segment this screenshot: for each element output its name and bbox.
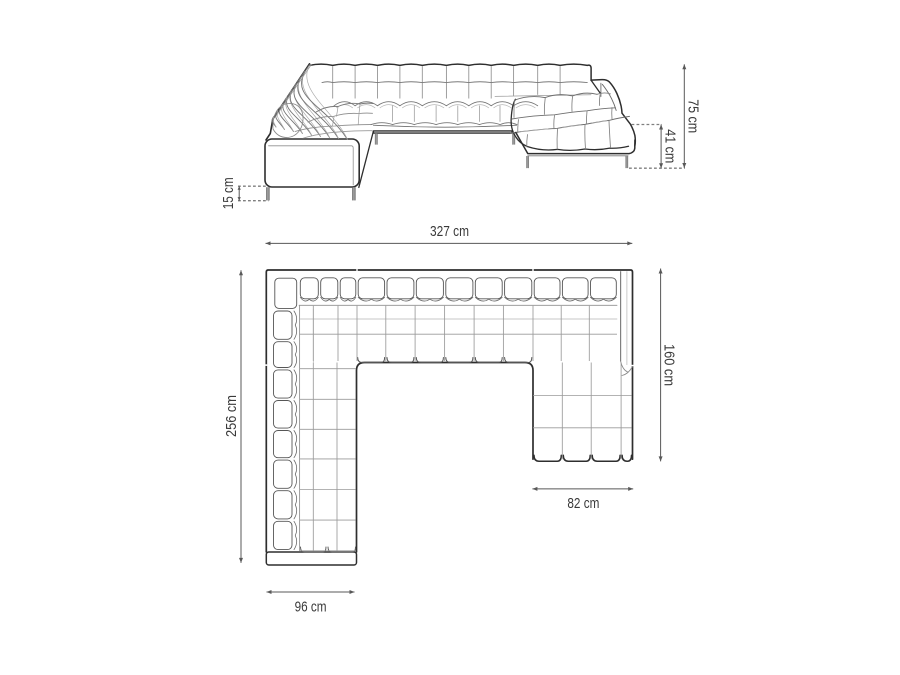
svg-text:96 cm: 96 cm <box>295 599 327 616</box>
svg-text:256 cm: 256 cm <box>223 395 240 437</box>
svg-text:15 cm: 15 cm <box>220 177 237 209</box>
svg-text:75 cm: 75 cm <box>685 99 702 133</box>
svg-text:41 cm: 41 cm <box>661 129 678 163</box>
svg-text:160 cm: 160 cm <box>661 344 678 386</box>
svg-text:327 cm: 327 cm <box>430 223 469 240</box>
svg-text:82 cm: 82 cm <box>567 495 599 512</box>
